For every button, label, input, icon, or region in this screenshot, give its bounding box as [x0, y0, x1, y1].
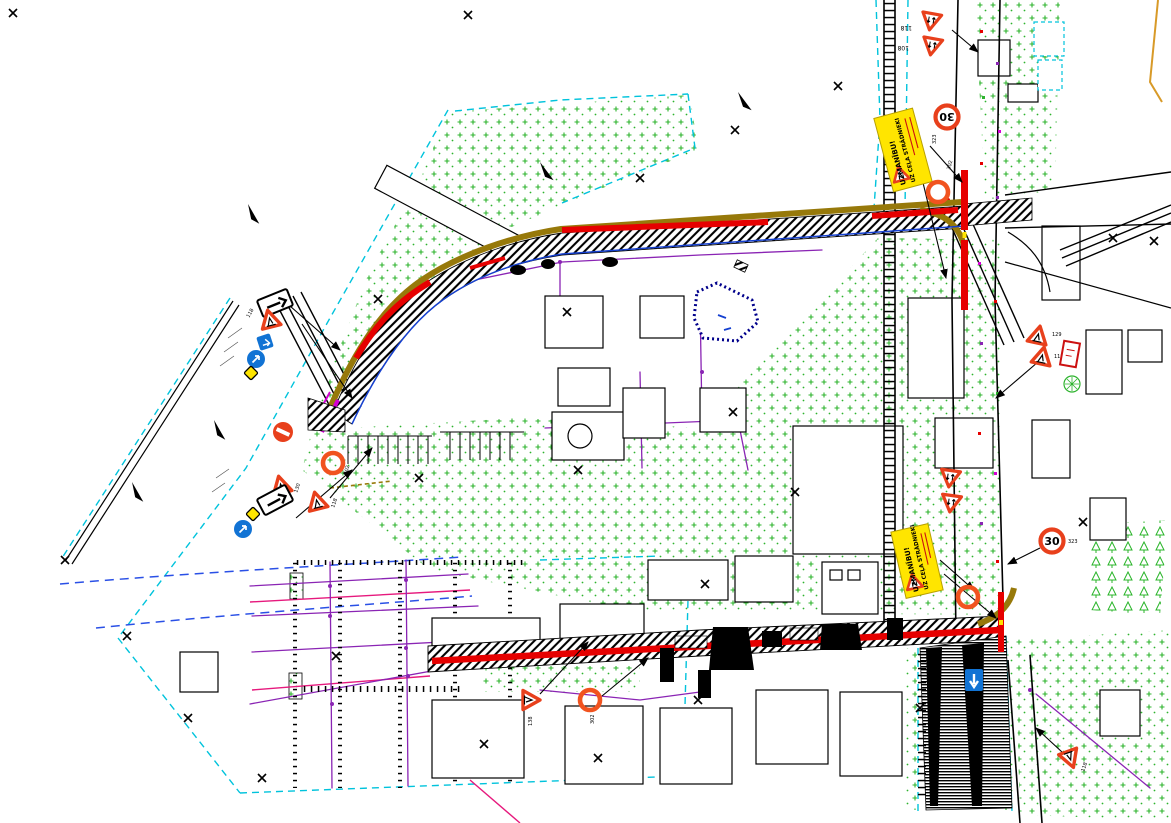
sign-code-label: 118 — [246, 308, 256, 319]
sign-code-label: 302 — [946, 160, 954, 171]
traffic-management-plan: 118 108 UZMANĪBU! UZ CEĻA STRĀDNIEKI UZM… — [0, 0, 1171, 823]
blue-down-arrow-sign — [965, 669, 983, 691]
yield-sign-top-2 — [921, 37, 943, 57]
blue-square-sign-1 — [256, 333, 274, 351]
no-entry-sign — [270, 419, 297, 446]
small-annotation-lines — [212, 328, 242, 492]
roadworks-triangle-bottom — [523, 691, 540, 710]
boundary-orange-line — [1150, 0, 1162, 102]
blue-circle-sign-1 — [247, 350, 265, 368]
detour-arrow-board-1 — [257, 289, 293, 318]
left-access-road — [66, 301, 239, 564]
sign-code-label: 323 — [932, 134, 938, 144]
info-board-top: UZMANĪBU! UZ CEĻA STRĀDNIEKI — [874, 108, 932, 192]
closed-area-stripes — [918, 636, 1012, 810]
blue-circle-sign-2 — [234, 520, 252, 538]
yellow-diamond-sign-1 — [244, 366, 258, 380]
yield-sign-top-1 — [920, 12, 942, 32]
yellow-diamond-sign-2 — [246, 507, 260, 521]
site-plan-canvas: 118 108 UZMANĪBU! UZ CEĻA STRĀDNIEKI UZM… — [0, 0, 1171, 823]
crossing-hatch — [963, 198, 1032, 226]
sign-code-label: 138 — [528, 716, 534, 726]
speed-limit-value: 30 — [1044, 535, 1060, 548]
detour-arrow-board-2 — [257, 485, 294, 516]
speed-limit-value: 30 — [939, 110, 955, 123]
speed-limit-sign-right: 30 — [1041, 530, 1064, 553]
roadworks-triangle-right-a — [1027, 324, 1049, 345]
roadworks-triangle-right-b — [1031, 345, 1053, 366]
sign-code-label: 118 — [900, 24, 912, 31]
pond — [694, 260, 758, 341]
sign-code-label: 302 — [590, 714, 596, 724]
tree-symbol — [1064, 376, 1080, 392]
sign-code-label: 130 — [293, 483, 302, 494]
speed-limit-sign-top: 30 — [936, 106, 959, 129]
ring-sign-top — [928, 182, 948, 202]
utility-lines-blue-dashed — [60, 557, 472, 628]
sign-code-label: 323 — [1068, 539, 1078, 545]
sign-code-label: 129 — [1052, 332, 1062, 338]
sign-code-label: 118 — [330, 498, 339, 509]
sign-code-label: 108 — [897, 44, 909, 51]
sign-plate-red-border — [1060, 341, 1080, 367]
